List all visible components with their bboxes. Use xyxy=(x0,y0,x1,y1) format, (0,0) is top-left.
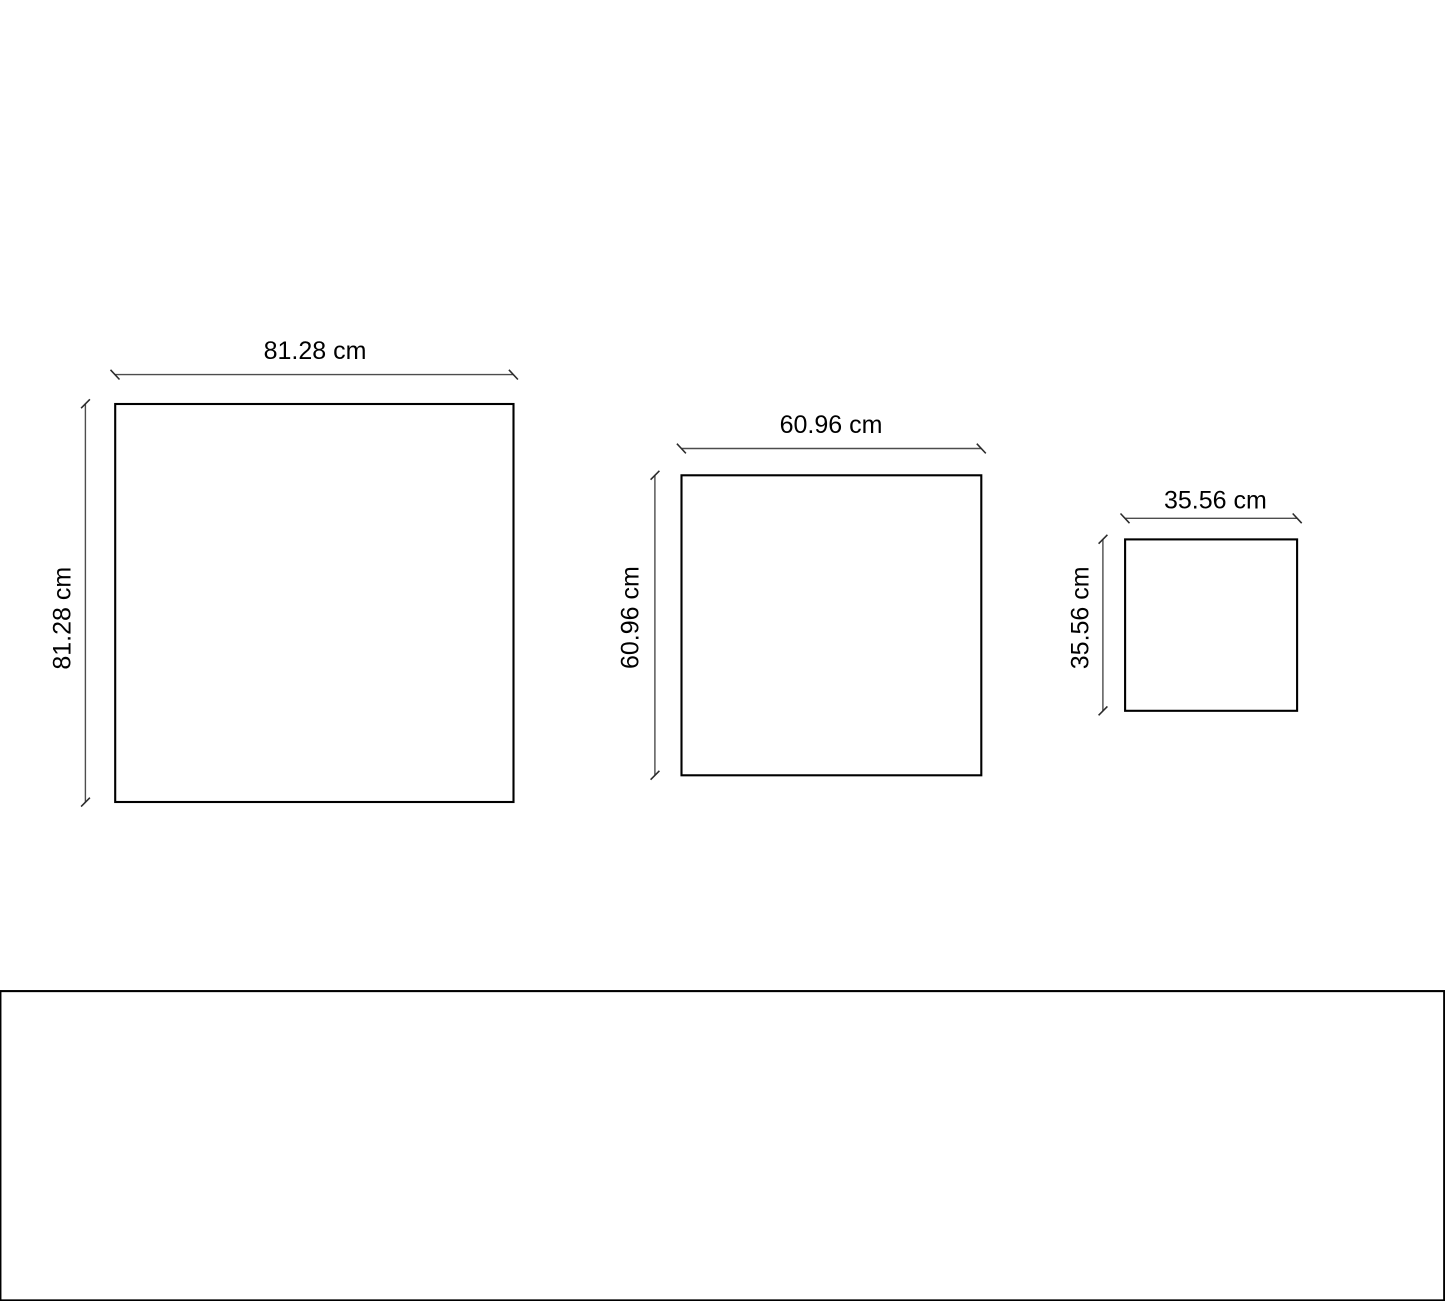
svg-text:81.28 cm: 81.28 cm xyxy=(264,337,367,365)
svg-text:35.56 cm: 35.56 cm xyxy=(1164,486,1267,514)
svg-text:35.56 cm: 35.56 cm xyxy=(1067,566,1095,669)
svg-text:81.28 cm: 81.28 cm xyxy=(49,567,77,670)
svg-text:60.96 cm: 60.96 cm xyxy=(780,411,883,439)
svg-text:60.96 cm: 60.96 cm xyxy=(617,566,645,669)
